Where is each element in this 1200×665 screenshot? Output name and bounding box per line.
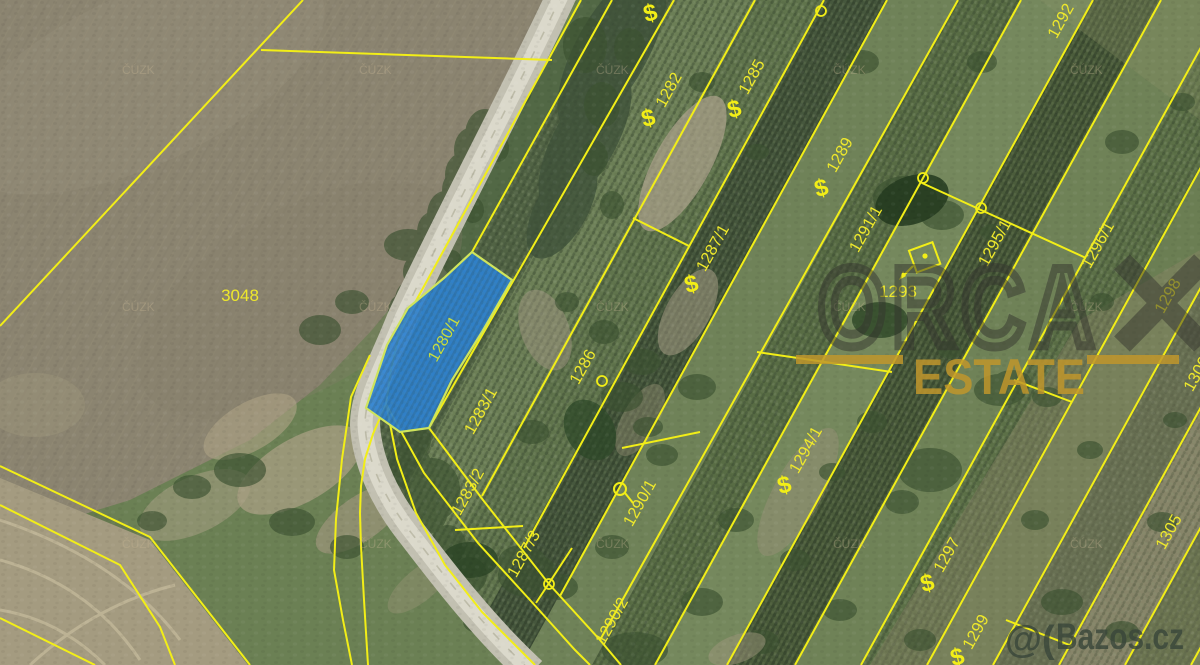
svg-text:ČÚZK: ČÚZK (122, 62, 155, 77)
svg-text:3048: 3048 (221, 286, 259, 305)
svg-text:ČÚZK: ČÚZK (1070, 62, 1103, 77)
svg-text:ČÚZK: ČÚZK (122, 536, 155, 551)
svg-text:ČÚZK: ČÚZK (359, 62, 392, 77)
svg-text:@(: @( (1005, 619, 1055, 661)
svg-text:Bazos.cz: Bazos.cz (1056, 616, 1184, 657)
svg-text:ESTATE: ESTATE (913, 349, 1085, 405)
svg-text:ČÚZK: ČÚZK (833, 62, 866, 77)
svg-text:ČÚZK: ČÚZK (596, 62, 629, 77)
svg-text:ČÚZK: ČÚZK (359, 536, 392, 551)
svg-text:ČÚZK: ČÚZK (833, 536, 866, 551)
svg-text:ČÚZK: ČÚZK (122, 299, 155, 314)
svg-text:ČÚZK: ČÚZK (1070, 536, 1103, 551)
svg-text:ČÚZK: ČÚZK (596, 536, 629, 551)
svg-text:ČÚZK: ČÚZK (596, 299, 629, 314)
svg-text:ČÚZK: ČÚZK (359, 299, 392, 314)
